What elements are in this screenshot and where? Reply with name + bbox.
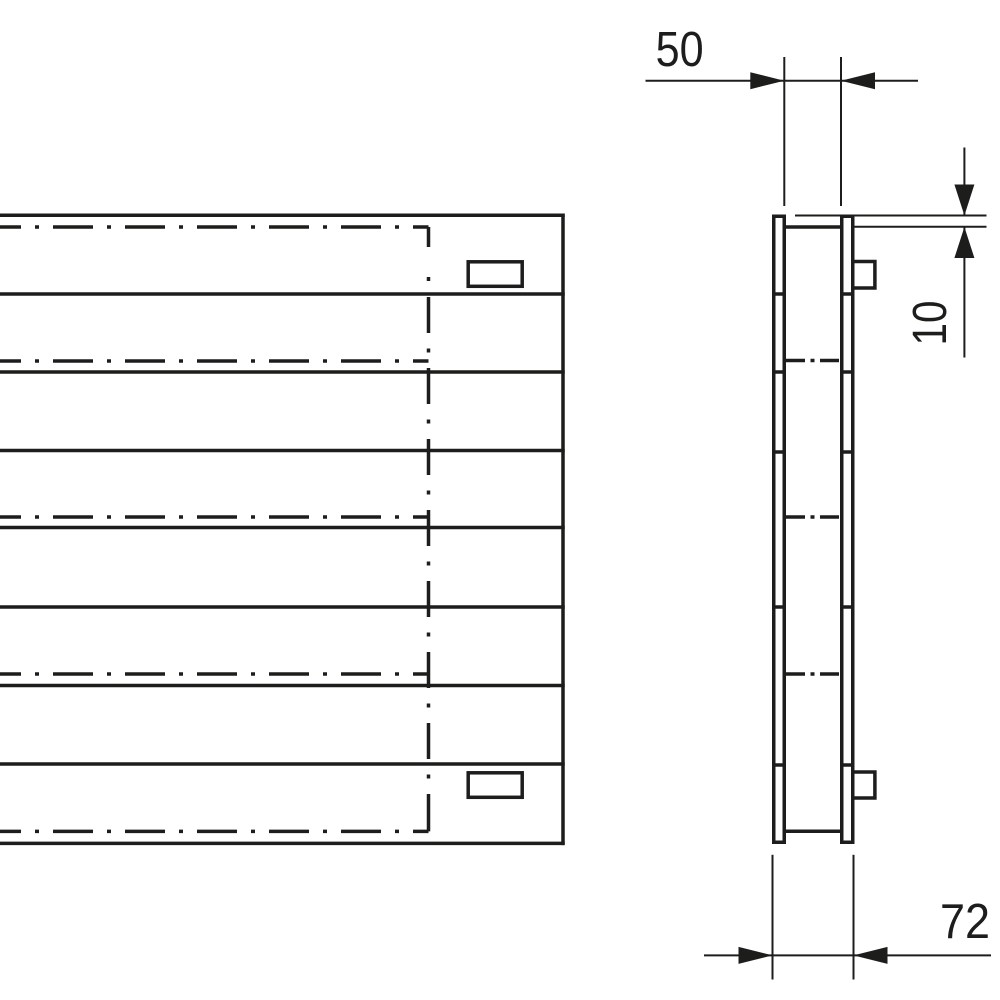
svg-text:72: 72 — [940, 895, 990, 949]
svg-text:50: 50 — [656, 23, 704, 77]
svg-text:10: 10 — [904, 301, 957, 346]
